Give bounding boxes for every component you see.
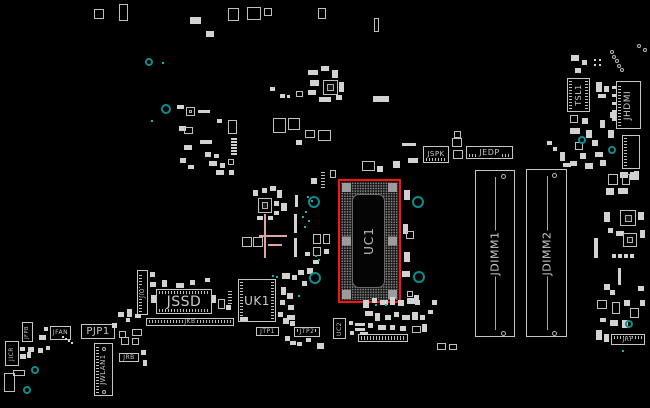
smd-part xyxy=(582,60,587,65)
mounting-hole xyxy=(145,58,153,66)
smd-part xyxy=(580,153,586,159)
smd-part xyxy=(407,291,413,297)
smd-part xyxy=(408,158,418,163)
smd-part xyxy=(247,7,261,20)
smd-part xyxy=(188,165,194,169)
component-jdimm1[interactable]: JDIMM1 xyxy=(475,170,515,337)
smd-part xyxy=(321,170,325,188)
component-label: JSPK xyxy=(426,151,445,158)
smd-part xyxy=(608,228,613,233)
smd-part xyxy=(229,170,234,175)
smd-part xyxy=(363,300,369,308)
smd-part xyxy=(231,153,237,155)
pin-ticks xyxy=(624,138,627,166)
smd-part xyxy=(141,350,146,355)
smd-part xyxy=(586,130,592,138)
smd-part xyxy=(404,252,410,262)
smd-part xyxy=(415,300,420,305)
test-point xyxy=(304,226,306,228)
component-pin-strip xyxy=(358,334,408,342)
smd-part xyxy=(177,105,184,109)
smd-part xyxy=(94,9,104,19)
smd-part xyxy=(257,216,263,220)
smd-part xyxy=(308,70,318,75)
smd-part xyxy=(372,298,377,303)
smd-part xyxy=(570,161,577,166)
smd-part xyxy=(321,66,329,71)
mounting-hole xyxy=(413,271,425,283)
smd-part xyxy=(378,325,386,330)
connector-hole xyxy=(552,331,557,336)
smd-part xyxy=(618,254,622,258)
smd-part xyxy=(624,254,628,258)
smd-part xyxy=(390,297,395,305)
test-point xyxy=(307,196,309,198)
smd-part xyxy=(407,298,415,304)
smd-part xyxy=(412,326,421,333)
smd-part xyxy=(368,323,373,328)
component-jicr[interactable]: JICR xyxy=(5,341,19,366)
smd-part xyxy=(594,64,596,66)
smd-part xyxy=(305,130,315,138)
smd-part xyxy=(281,203,287,211)
component-label: JRP xyxy=(621,337,634,343)
smd-part xyxy=(278,312,283,317)
mounting-hole xyxy=(308,196,320,208)
smd-part xyxy=(240,317,248,321)
test-point xyxy=(305,211,307,213)
smd-part xyxy=(449,344,457,350)
smd-part xyxy=(217,119,222,123)
test-point xyxy=(315,255,317,257)
smd-part xyxy=(618,268,621,285)
smd-part xyxy=(599,59,601,61)
smd-part xyxy=(214,154,219,158)
smd-part xyxy=(253,237,263,247)
smd-part xyxy=(612,118,616,121)
smd-part xyxy=(634,171,639,180)
highlight-net-trace xyxy=(259,235,287,237)
smd-part xyxy=(623,233,637,247)
smd-part xyxy=(274,211,279,215)
smd-part xyxy=(547,141,552,145)
smd-part xyxy=(362,161,375,171)
smd-part xyxy=(151,295,156,303)
mounting-hole xyxy=(412,196,424,208)
smd-part xyxy=(162,280,167,287)
test-point xyxy=(162,62,164,64)
component-label: TSL1 xyxy=(575,83,583,107)
smd-part xyxy=(432,300,437,305)
smd-part xyxy=(308,90,316,95)
smd-part xyxy=(390,325,395,330)
component-label: UC1 xyxy=(362,226,374,256)
component-jrb[interactable]: JRB xyxy=(119,353,139,362)
smd-part xyxy=(313,234,321,244)
smd-part xyxy=(228,290,232,304)
smd-part xyxy=(612,94,616,97)
smd-part xyxy=(385,315,391,320)
smd-part xyxy=(294,214,297,233)
component-label: JRB xyxy=(122,355,136,361)
smd-part xyxy=(402,271,410,277)
fiducial-circle xyxy=(615,59,619,63)
smd-part xyxy=(608,130,614,138)
smd-part xyxy=(608,174,618,185)
smd-part xyxy=(610,290,615,295)
component-jio[interactable]: JIO xyxy=(137,270,148,315)
component-uc2[interactable]: UC2 xyxy=(333,318,346,339)
smd-part xyxy=(13,370,25,376)
mounting-hole xyxy=(23,386,31,394)
component-label: JDIMM1 xyxy=(490,231,501,277)
smd-part xyxy=(394,312,399,317)
smd-part xyxy=(373,96,389,102)
pin-ticks xyxy=(569,81,572,109)
component-label: JEDP xyxy=(478,149,500,157)
smd-part xyxy=(428,310,433,314)
smd-part xyxy=(596,330,602,340)
smd-part xyxy=(600,120,605,128)
smd-part xyxy=(604,212,610,222)
smd-part xyxy=(231,138,237,140)
smd-part xyxy=(640,300,645,306)
smd-part xyxy=(402,143,416,146)
smd-part xyxy=(296,91,303,97)
smd-part xyxy=(38,348,43,353)
smd-part xyxy=(374,18,379,32)
smd-part xyxy=(186,107,195,116)
smd-part xyxy=(39,335,46,340)
smd-part xyxy=(606,188,614,195)
smd-part xyxy=(290,321,295,326)
smd-part xyxy=(422,324,427,332)
smd-part xyxy=(268,216,273,220)
smd-part xyxy=(176,283,184,288)
smd-part xyxy=(262,188,267,193)
smd-part xyxy=(350,331,354,335)
smd-part xyxy=(638,286,644,291)
smd-part xyxy=(118,312,124,317)
smd-part xyxy=(132,329,142,336)
smd-part xyxy=(402,315,410,320)
smd-part xyxy=(604,334,609,342)
board-canvas[interactable]: UC1 JDIMM1JDIMM2TSL1JHDMIJSPKJEDPJSSDJKB… xyxy=(0,0,650,408)
smd-part xyxy=(597,300,607,309)
pin-ticks xyxy=(426,158,446,161)
test-point xyxy=(298,295,300,297)
smd-part xyxy=(242,237,252,247)
smd-part xyxy=(231,144,237,146)
smd-part xyxy=(365,311,373,316)
smd-part xyxy=(132,338,139,345)
smd-part xyxy=(393,163,400,168)
smd-part xyxy=(226,305,231,310)
smd-part xyxy=(594,238,598,258)
smd-part xyxy=(294,238,297,257)
mounting-hole xyxy=(608,146,616,154)
test-point xyxy=(622,350,624,352)
smd-part xyxy=(599,64,601,66)
smd-part xyxy=(290,341,296,345)
component-jssd[interactable]: JSSD xyxy=(156,289,212,314)
smd-part xyxy=(292,275,297,280)
test-point xyxy=(385,304,387,306)
smd-part xyxy=(553,147,557,151)
smd-part xyxy=(127,309,132,317)
smd-part xyxy=(571,55,579,61)
component-pjp1[interactable]: PJP1 xyxy=(81,324,115,339)
pin-ticks xyxy=(361,336,405,340)
smd-part xyxy=(355,328,365,331)
pin-ticks xyxy=(585,81,588,109)
smd-part xyxy=(610,320,618,326)
component-label: PJP1 xyxy=(85,327,110,337)
smd-part xyxy=(119,331,126,338)
smd-part xyxy=(600,160,606,166)
smd-part xyxy=(585,163,593,169)
smd-part xyxy=(319,97,331,102)
smd-part xyxy=(216,170,224,175)
component-jkb[interactable]: JKB xyxy=(146,318,234,326)
smd-part xyxy=(412,312,418,320)
component-jhdmi[interactable]: JHDMI xyxy=(616,81,641,129)
smd-part xyxy=(150,282,156,287)
component-jspk[interactable]: JSPK xyxy=(423,146,449,163)
smd-part xyxy=(288,118,300,130)
test-point xyxy=(318,259,320,261)
smd-part xyxy=(630,254,634,258)
smd-part xyxy=(596,82,602,92)
component-uc1[interactable]: UC1 xyxy=(338,179,401,303)
smd-part xyxy=(209,161,217,166)
test-point xyxy=(151,120,153,122)
smd-part xyxy=(310,80,319,86)
smd-part xyxy=(323,80,338,95)
smd-part xyxy=(27,352,31,358)
smd-part xyxy=(640,230,645,238)
smd-part xyxy=(273,118,286,133)
smd-part xyxy=(231,150,237,152)
component-label: JTP1 xyxy=(259,329,276,335)
smd-part xyxy=(20,347,25,351)
smd-part xyxy=(46,346,50,350)
connector-hole xyxy=(501,174,506,179)
fiducial-circle xyxy=(637,44,641,48)
component-jdimm2[interactable]: JDIMM2 xyxy=(526,169,567,337)
component-label: JSSD xyxy=(166,295,203,309)
smd-part xyxy=(404,190,410,200)
smd-part xyxy=(287,293,293,299)
smd-part xyxy=(228,120,237,134)
smd-part xyxy=(20,354,26,359)
smd-part xyxy=(437,343,446,350)
smd-part xyxy=(283,318,289,324)
smd-part xyxy=(184,127,193,134)
smd-part xyxy=(317,343,324,349)
test-point xyxy=(302,216,304,218)
smd-part xyxy=(280,94,285,98)
smd-part xyxy=(65,338,67,340)
smd-part xyxy=(277,190,282,198)
smd-part xyxy=(575,68,581,73)
smd-part xyxy=(332,70,338,78)
bga-pad xyxy=(388,183,397,192)
smd-part xyxy=(190,280,195,285)
smd-part xyxy=(336,95,342,100)
smd-part xyxy=(612,86,616,89)
component-tsl1[interactable]: TSL1 xyxy=(567,78,590,112)
smd-part xyxy=(594,59,596,61)
mounting-hole xyxy=(161,104,171,114)
smd-part xyxy=(323,234,330,244)
smd-part xyxy=(220,163,225,168)
smd-part xyxy=(570,128,580,134)
component-label: JFPB xyxy=(25,325,30,340)
component-jconn xyxy=(622,135,640,169)
smd-part xyxy=(282,273,290,279)
smd-part xyxy=(612,110,616,113)
smd-part xyxy=(190,17,201,24)
smd-part xyxy=(112,323,117,328)
component-uk1[interactable]: UK1 xyxy=(238,279,276,322)
smd-part xyxy=(264,8,272,16)
component-jfan[interactable]: JFAN xyxy=(50,326,71,340)
mounting-hole xyxy=(625,320,633,328)
smd-part xyxy=(68,340,70,342)
smd-part xyxy=(592,140,598,146)
pin-ticks xyxy=(618,84,621,126)
smd-part xyxy=(306,338,311,342)
smd-part xyxy=(288,305,294,310)
smd-part xyxy=(200,140,212,144)
smd-part xyxy=(375,313,380,321)
smd-part xyxy=(305,252,310,256)
smd-part xyxy=(206,31,214,37)
smd-part xyxy=(150,272,155,277)
bga-pad xyxy=(342,237,351,246)
smd-part xyxy=(298,270,304,275)
smd-part xyxy=(330,170,336,178)
test-point xyxy=(272,275,274,277)
component-jwlan1[interactable]: JWLAN1 xyxy=(94,343,113,396)
smd-part xyxy=(595,152,603,157)
smd-part xyxy=(560,152,565,161)
component-jrp[interactable]: JRP xyxy=(611,334,645,345)
component-label: JIO xyxy=(140,287,146,299)
highlight-net-trace xyxy=(268,244,282,246)
smd-part xyxy=(296,140,302,145)
smd-part xyxy=(302,281,307,286)
smd-part xyxy=(295,195,298,207)
smd-part xyxy=(612,302,620,314)
component-label: JTP2 xyxy=(299,329,316,335)
smd-part xyxy=(280,300,285,305)
smd-part xyxy=(198,110,210,113)
smd-part xyxy=(231,147,237,149)
smd-part xyxy=(630,308,639,318)
connector-hole xyxy=(102,347,106,351)
smd-part xyxy=(28,347,34,352)
smd-part xyxy=(228,8,239,21)
smd-part xyxy=(453,150,463,159)
smd-part xyxy=(258,198,272,213)
smd-part xyxy=(349,321,353,325)
smd-part xyxy=(454,131,461,138)
smd-part xyxy=(398,300,404,306)
smd-part xyxy=(618,188,628,194)
smd-part xyxy=(612,254,616,258)
smd-part xyxy=(339,82,344,92)
smd-part xyxy=(119,4,128,21)
smd-part xyxy=(638,212,644,220)
smd-part xyxy=(400,326,406,331)
smd-part xyxy=(274,201,279,206)
smd-part xyxy=(360,332,368,335)
connector-hole xyxy=(501,331,506,336)
smd-part xyxy=(135,314,141,318)
smd-part xyxy=(582,118,588,124)
smd-part xyxy=(420,315,425,320)
smd-part xyxy=(205,278,210,282)
bga-pad xyxy=(388,237,397,246)
component-jfpb[interactable]: JFPB xyxy=(22,322,33,342)
test-point xyxy=(375,304,377,306)
component-label: JKB xyxy=(183,319,196,325)
test-point xyxy=(276,276,278,278)
test-point xyxy=(308,220,310,222)
smd-part xyxy=(406,231,414,239)
smd-part xyxy=(570,115,578,123)
smd-part xyxy=(624,300,630,306)
smd-part xyxy=(324,249,329,254)
smd-part xyxy=(622,174,630,185)
uc1-die-outline: UC1 xyxy=(352,194,385,288)
smd-part xyxy=(44,327,48,331)
smd-part xyxy=(600,318,606,322)
smd-part xyxy=(270,186,276,191)
component-jedp[interactable]: JEDP xyxy=(466,146,513,159)
component-jtp1[interactable]: JTP1 xyxy=(256,327,279,336)
smd-part xyxy=(281,287,286,295)
smd-part xyxy=(318,130,331,141)
mounting-hole xyxy=(309,272,321,284)
fiducial-circle xyxy=(643,48,647,52)
smd-part xyxy=(228,159,234,165)
component-jtp2[interactable]: JTP2 xyxy=(294,327,320,337)
smd-part xyxy=(253,190,258,196)
smd-part xyxy=(620,210,636,226)
connector-hole xyxy=(102,390,106,394)
smd-part xyxy=(121,337,129,345)
smd-part xyxy=(184,145,192,150)
smd-part xyxy=(231,141,237,143)
component-label: JWLAN1 xyxy=(100,353,107,386)
mounting-hole xyxy=(31,366,39,374)
smd-part xyxy=(205,152,211,157)
smd-part xyxy=(318,8,326,19)
smd-part xyxy=(452,138,462,147)
smd-part xyxy=(311,178,317,184)
smd-part xyxy=(297,342,302,346)
smd-part xyxy=(355,323,365,326)
component-label: UK1 xyxy=(243,295,271,307)
mounting-hole xyxy=(578,136,586,144)
smd-part xyxy=(71,342,73,344)
connector-hole xyxy=(552,173,557,178)
component-label: JDIMM2 xyxy=(541,230,552,276)
component-label: UC2 xyxy=(337,321,343,337)
